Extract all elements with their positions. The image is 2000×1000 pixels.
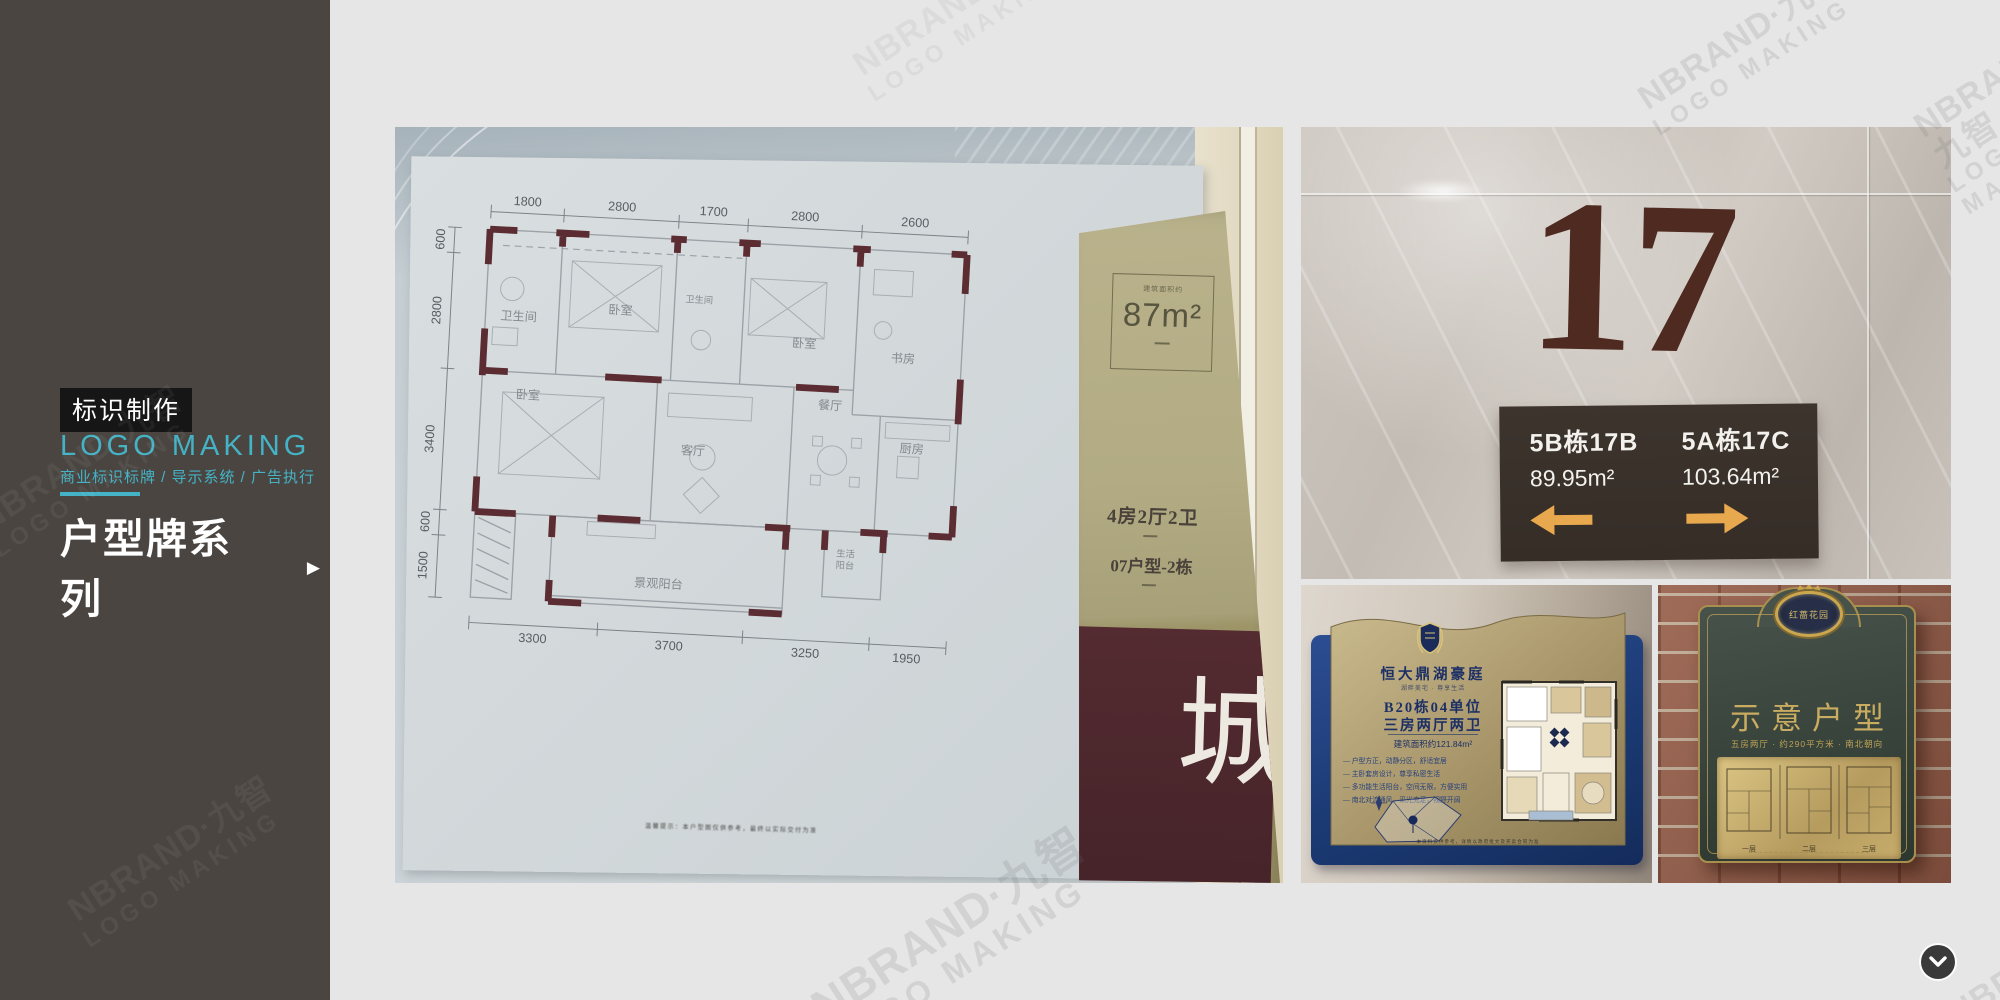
svg-text:3700: 3700	[654, 638, 683, 654]
section-title: 户型牌系列	[60, 505, 265, 625]
watermark: NBRAND·九智 LOGO MAKING	[1632, 0, 1863, 138]
category-badge: 标识制作	[60, 388, 192, 432]
logo-making-label: LOGO MAKING	[60, 430, 310, 463]
svg-text:600: 600	[433, 228, 448, 250]
brass-floorplans: 一层 二层 三层	[1717, 757, 1901, 859]
plaque-title: 示意户型	[1700, 693, 1914, 738]
arrow-right-icon: ▶	[307, 558, 320, 578]
floor-number: 17	[1525, 167, 1736, 389]
garden-emblem: 红蔷花园	[1775, 591, 1843, 637]
brass-plan-plate: 一层 二层 三层	[1717, 757, 1901, 859]
directory-right: 5A栋17C 103.64m²	[1681, 421, 1791, 534]
sidebar: NBRAND·九智 LOGO MAKING NBRAND·九智 LOGO MAK…	[0, 0, 330, 1000]
area-box: 建筑面积约 87m²	[1110, 273, 1215, 372]
area-label: 建筑面积约	[1113, 283, 1213, 296]
svg-text:卧室: 卧室	[792, 335, 817, 351]
svg-text:2800: 2800	[791, 209, 820, 225]
svg-text:2800: 2800	[608, 199, 637, 215]
svg-text:卧室: 卧室	[608, 302, 633, 318]
svg-text:餐厅: 餐厅	[818, 397, 843, 413]
svg-text:卧室: 卧室	[515, 386, 540, 402]
brand-glyph: 城	[1175, 675, 1278, 796]
portfolio-page: NBRAND·九智 LOGO MAKING NBRAND·九智 LOGO MAK…	[0, 0, 2000, 1000]
svg-text:3300: 3300	[518, 631, 547, 647]
svg-text:厨房: 厨房	[899, 440, 924, 456]
svg-text:客厅: 客厅	[680, 442, 705, 458]
svg-text:书房: 书房	[890, 350, 915, 366]
arrow-left-icon	[1530, 505, 1596, 536]
arrow-right-icon	[1682, 503, 1748, 534]
svg-text:景观阳台: 景观阳台	[634, 574, 683, 592]
svg-text:生活: 生活	[836, 547, 855, 559]
photo-gold-plate: 恒大鼎湖豪庭 湖畔美宅 · 尊享生活 B20栋04单位 三房两厅两卫 建筑面积约…	[1301, 585, 1652, 883]
svg-text:卫生间: 卫生间	[685, 293, 713, 305]
plaque: 红蔷花园 示意户型 五房两厅 · 约290平方米 · 南北朝向 一层 二层 三层	[1698, 605, 1916, 863]
watermark: NBRAND·九智 LOGO MAKING	[847, 0, 1078, 104]
chevron-down-icon	[1929, 956, 1947, 968]
svg-text:1800: 1800	[513, 194, 542, 210]
dimension-labels: 1800 2800 1700 2800 2600 600 2800 3400 6…	[412, 190, 944, 667]
brand-band: 城	[1068, 626, 1278, 883]
mini-floorplan	[1499, 679, 1619, 823]
light-reflection	[1397, 179, 1487, 203]
unit-label: 5A栋17C	[1681, 421, 1790, 458]
directory-sign: 5B栋17B 89.95m² 5A栋17C 103.64m²	[1499, 403, 1819, 561]
scroll-down-button[interactable]	[1921, 945, 1955, 979]
services-label: 商业标识标牌 / 导示系统 / 广告执行	[60, 466, 315, 487]
svg-text:600: 600	[418, 511, 433, 533]
svg-text:3250: 3250	[791, 645, 820, 661]
emblem-text: 红蔷花园	[1789, 608, 1829, 621]
layout-label: 4房2厅2卫	[1078, 500, 1229, 531]
accent-underline	[60, 492, 140, 496]
marble-joint	[1867, 127, 1869, 579]
area-value: 87m²	[1112, 295, 1213, 336]
decorative-rule	[1749, 852, 1869, 853]
svg-text:阳台: 阳台	[835, 559, 854, 571]
svg-text:3400: 3400	[422, 424, 438, 453]
room-labels: 卫生间 卧室 卫生间 卧室 书房 卧室 客厅 餐厅 厨房 生活 阳台 景观阳台	[486, 283, 932, 604]
plaque-subtitle: 五房两厅 · 约290平方米 · 南北朝向	[1700, 738, 1914, 750]
directory-left: 5B栋17B 89.95m²	[1529, 422, 1639, 535]
svg-text:1500: 1500	[415, 551, 431, 580]
unit-number-label: 07户型-2栋	[1076, 550, 1227, 579]
gold-plate: 恒大鼎湖豪庭 湖畔美宅 · 尊享生活 B20栋04单位 三房两厅两卫 建筑面积约…	[1327, 597, 1629, 851]
photo-green-plaque: 红蔷花园 示意户型 五房两厅 · 约290平方米 · 南北朝向 一层 二层 三层	[1658, 585, 1951, 883]
floor-plan-drawing: 1800 2800 1700 2800 2600 600 2800 3400 6…	[399, 186, 1047, 687]
photo-floor-directory: 17 5B栋17B 89.95m² 5A栋17C 103.64m²	[1301, 127, 1951, 579]
photo-floorplan-sign: 1800 2800 1700 2800 2600 600 2800 3400 6…	[395, 127, 1283, 883]
svg-text:2800: 2800	[429, 296, 445, 325]
svg-text:1700: 1700	[699, 204, 728, 220]
watermark: NBRAND·九智 LOGO MAKING	[62, 771, 293, 950]
svg-text:2600: 2600	[901, 215, 930, 231]
svg-text:1950: 1950	[892, 651, 921, 667]
sidebar-item-huxingpai[interactable]: 户型牌系列 ▶	[60, 505, 320, 625]
fine-print: 本资料仅供参考，详情以政府批文及买卖合同为准	[1343, 839, 1613, 845]
shield-emblem-icon	[1413, 619, 1447, 657]
unit-area: 89.95m²	[1530, 464, 1639, 492]
unit-label: 5B栋17B	[1529, 422, 1638, 459]
svg-text:卫生间: 卫生间	[500, 308, 537, 324]
unit-area: 103.64m²	[1682, 463, 1791, 491]
